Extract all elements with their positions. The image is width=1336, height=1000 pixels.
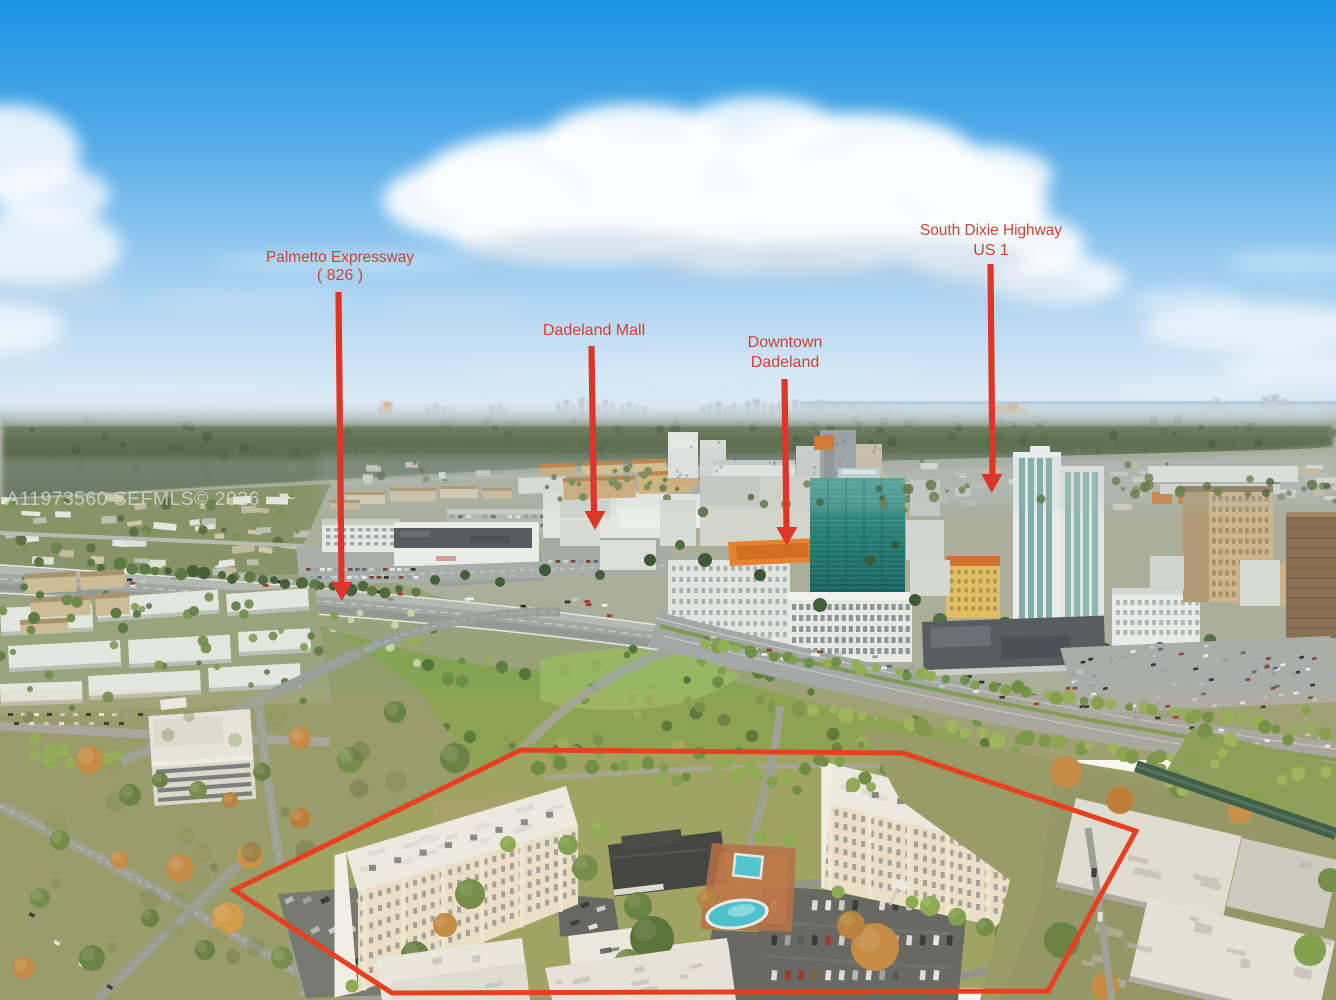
svg-text:Dadeland: Dadeland [751, 354, 820, 371]
svg-text:South Dixie Highway: South Dixie Highway [920, 222, 1062, 239]
svg-text:Palmetto Expressway: Palmetto Expressway [266, 249, 414, 266]
svg-text:US 1: US 1 [973, 242, 1009, 259]
svg-text:A11973560 SEFMLS© 2026: A11973560 SEFMLS© 2026 [6, 488, 260, 510]
svg-text:( 826 ): ( 826 ) [317, 267, 363, 284]
svg-text:Dadeland Mall: Dadeland Mall [543, 322, 645, 339]
svg-text:Downtown: Downtown [748, 334, 823, 351]
